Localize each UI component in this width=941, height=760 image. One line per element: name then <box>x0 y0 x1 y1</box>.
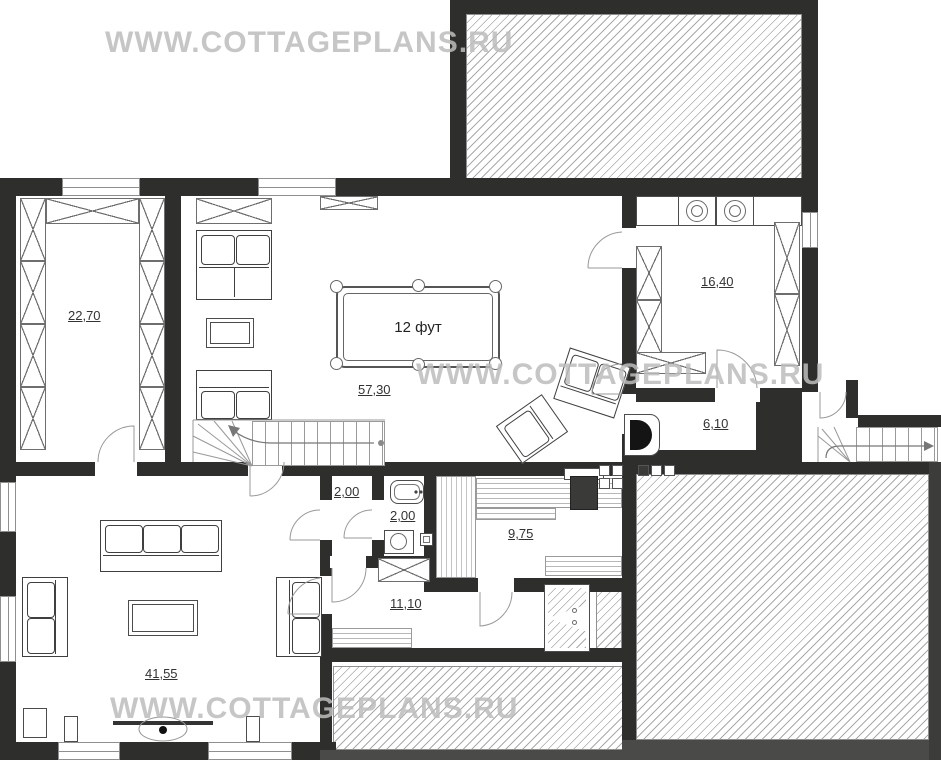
watermark: WWW.COTTAGEPLANS.RU <box>105 26 513 60</box>
room-area-label-living: 41,55 <box>145 666 178 681</box>
billiard-pocket <box>330 280 343 293</box>
control-box <box>599 478 610 489</box>
tv-stand-dot <box>159 726 167 734</box>
control-box <box>651 465 662 476</box>
billiard-table-label: 12 фут <box>394 319 441 336</box>
shower-handle <box>572 608 577 613</box>
sofa <box>100 520 222 572</box>
wall <box>756 402 802 452</box>
terrace-border <box>929 462 941 760</box>
shelving-unit <box>139 261 165 324</box>
door-opening <box>95 462 137 476</box>
wardrobe <box>196 198 272 224</box>
door-opening <box>320 500 332 540</box>
control-box <box>612 478 623 489</box>
terrace-right-hatch <box>636 474 929 740</box>
shelving-unit <box>20 324 46 387</box>
window <box>0 596 16 662</box>
cabinet <box>420 533 433 546</box>
shelving-unit <box>46 198 139 224</box>
shelving-unit <box>20 261 46 324</box>
door-swing <box>820 392 846 418</box>
control-box <box>664 465 675 476</box>
control-box <box>599 465 610 476</box>
control-box <box>612 465 623 476</box>
door-swing <box>588 232 622 268</box>
door-swing <box>98 426 134 462</box>
watermark: WWW.COTTAGEPLANS.RU <box>416 358 824 392</box>
wall <box>424 578 636 592</box>
door-opening <box>478 578 514 592</box>
door-opening <box>330 556 366 568</box>
wall <box>802 0 818 392</box>
wardrobe <box>378 558 430 582</box>
room-area-label-washroom: 11,10 <box>390 596 422 611</box>
floor-plan: 12 фут <box>0 0 941 760</box>
sofa <box>276 577 322 657</box>
window <box>258 178 336 196</box>
shower-handle <box>572 620 577 625</box>
door-swing <box>344 510 372 538</box>
sofa <box>196 370 272 420</box>
stairs-exterior <box>856 427 938 462</box>
wardrobe <box>774 222 800 294</box>
washbasin-bowl <box>390 533 407 550</box>
watermark: WWW.COTTAGEPLANS.RU <box>110 692 518 726</box>
speaker <box>23 708 47 738</box>
room-area-label-sauna: 9,75 <box>508 526 533 541</box>
wall <box>846 392 858 418</box>
sink-bowl <box>729 205 741 217</box>
shower-side-hatch <box>596 588 622 650</box>
terrace-border <box>622 740 941 760</box>
control-box <box>638 465 649 476</box>
sink-bowl <box>691 205 703 217</box>
door-opening <box>622 228 636 268</box>
window <box>62 178 140 196</box>
door-swing <box>290 510 320 540</box>
shelving-unit <box>139 324 165 387</box>
coffee-table <box>128 600 198 636</box>
window <box>208 742 292 760</box>
shelving-unit <box>20 198 46 261</box>
stairs-interior <box>252 421 385 466</box>
wardrobe <box>636 300 662 354</box>
room-area-label-dressing: 22,70 <box>68 308 101 323</box>
door-swing <box>332 568 366 602</box>
billiard-pocket <box>412 279 425 292</box>
bench <box>332 628 412 648</box>
shelving-unit <box>139 198 165 261</box>
stair-winders <box>193 421 252 466</box>
shelving-unit <box>20 387 46 450</box>
wardrobe <box>774 294 800 366</box>
billiard-table: 12 фут <box>336 286 500 368</box>
room-area-label-kitchen: 16,40 <box>701 274 734 289</box>
wardrobe <box>636 246 662 300</box>
speaker <box>64 716 78 742</box>
terrace-border <box>320 750 636 760</box>
window <box>0 482 16 532</box>
room-area-label-bathroom: 2,00 <box>390 508 415 523</box>
sofa <box>22 577 68 657</box>
shelf <box>320 196 378 210</box>
terrace-top-hatch <box>466 14 802 182</box>
billiard-pocket <box>330 357 343 370</box>
door-swing <box>480 592 512 626</box>
wall <box>858 415 941 427</box>
bathtub <box>390 480 424 504</box>
sauna-bench <box>545 556 622 576</box>
wall <box>165 196 181 462</box>
door-opening <box>372 500 384 540</box>
stair-arrowhead <box>228 425 240 437</box>
wall <box>450 0 818 14</box>
sauna-bench <box>436 476 476 578</box>
room-area-label-hallway: 6,10 <box>703 416 728 431</box>
stair-winders <box>818 427 850 462</box>
armchair <box>496 394 568 464</box>
room-area-label-game: 57,30 <box>358 382 391 397</box>
shelving-unit <box>139 387 165 450</box>
sofa <box>196 230 272 300</box>
room-area-label-hall: 2,00 <box>334 484 359 499</box>
sauna-heater <box>570 476 598 510</box>
window <box>58 742 120 760</box>
window <box>802 212 818 248</box>
side-table <box>206 318 254 348</box>
sauna-bench <box>476 508 556 520</box>
billiard-pocket <box>489 280 502 293</box>
